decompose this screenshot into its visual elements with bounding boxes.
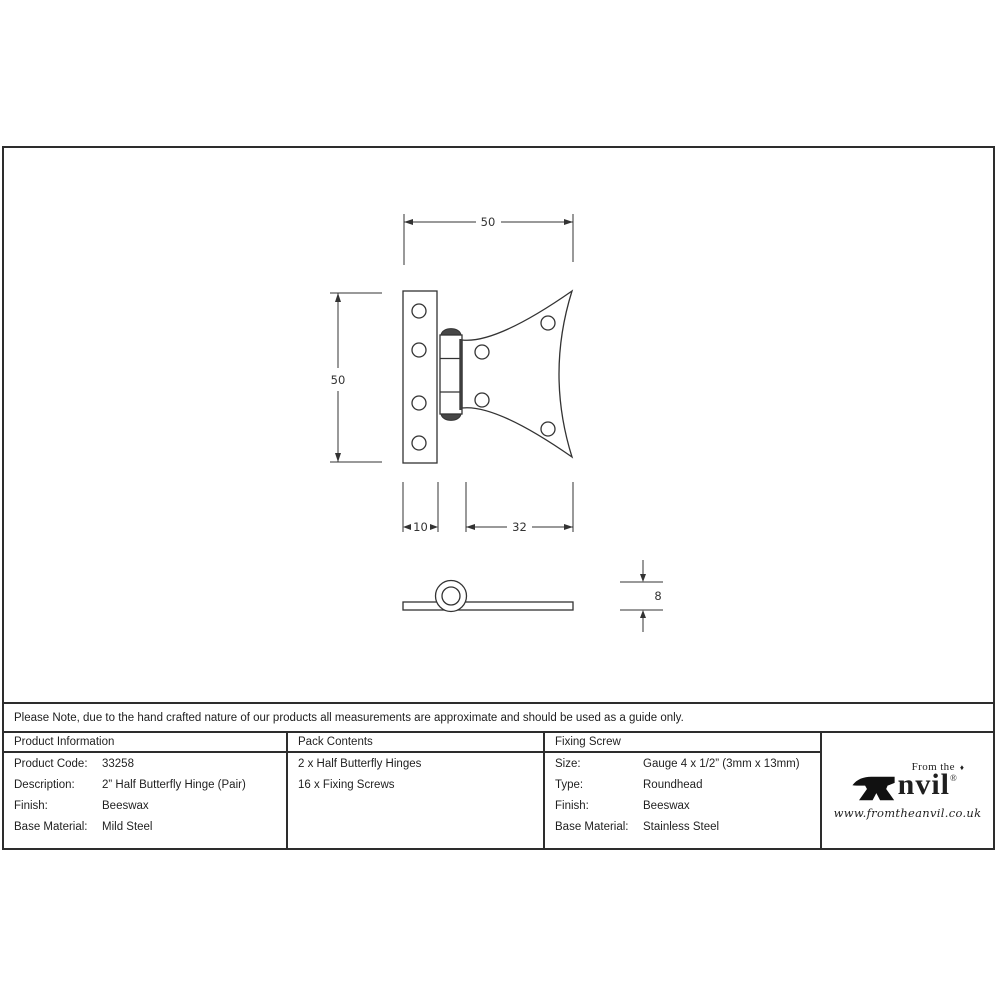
product-code-row: Product Code: 33258: [14, 754, 286, 775]
side-view-plate: [403, 602, 573, 610]
field-value: Beeswax: [643, 796, 820, 817]
dim-label-left-height: 50: [331, 373, 346, 387]
note-text: Please Note, due to the hand crafted nat…: [14, 712, 684, 724]
field-label: Type:: [555, 775, 643, 796]
logo-wordmark: nvil: [898, 768, 950, 801]
knuckle-top-cap: [441, 329, 461, 335]
pack-line: 2 x Half Butterfly Hinges: [298, 754, 543, 775]
screw-hole: [412, 343, 426, 357]
field-label: Base Material:: [555, 817, 643, 838]
field-value: Beeswax: [102, 796, 286, 817]
knuckle-barrel: [440, 335, 462, 414]
screw-hole: [412, 436, 426, 450]
pack-contents-header: Pack Contents: [288, 733, 543, 753]
field-value: Stainless Steel: [643, 817, 820, 838]
field-value: 2” Half Butterfly Hinge (Pair): [102, 775, 286, 796]
dimension-bottom: [403, 482, 573, 532]
spec-sheet-page: 50 50: [0, 0, 1000, 1000]
screw-hole: [475, 393, 489, 407]
field-value: Gauge 4 x 1/2” (3mm x 13mm): [643, 754, 820, 775]
field-value: 33258: [102, 754, 286, 775]
screw-hole: [541, 316, 555, 330]
field-label: Finish:: [14, 796, 102, 817]
hinge-drawing-svg: 50 50: [4, 148, 993, 700]
anvil-icon: [851, 773, 897, 803]
butterfly-wing: [462, 291, 572, 457]
dim-label-top-width: 50: [481, 215, 496, 229]
product-information-header: Product Information: [4, 733, 286, 753]
diamond-icon: ♦: [960, 763, 964, 772]
field-label: Product Code:: [14, 754, 102, 775]
screw-hole: [541, 422, 555, 436]
type-row: Type: Roundhead: [555, 775, 820, 796]
base-material-row: Base Material: Mild Steel: [14, 817, 286, 838]
knuckle-bottom-cap: [441, 414, 461, 420]
field-label: Size:: [555, 754, 643, 775]
field-value: Roundhead: [643, 775, 820, 796]
registered-mark: ®: [950, 773, 957, 783]
technical-drawing: 50 50: [4, 148, 993, 702]
brand-logo-cell: From the ♦ nvil® www.fromtheanvil.co.uk: [820, 733, 993, 848]
dim-label-wing-width: 32: [512, 520, 527, 534]
field-label: Finish:: [555, 796, 643, 817]
pack-contents-column: Pack Contents 2 x Half Butterfly Hinges …: [286, 733, 543, 848]
note-box: Please Note, due to the hand crafted nat…: [4, 702, 993, 733]
info-table: Product Information Product Code: 33258 …: [4, 733, 993, 848]
field-value: Mild Steel: [102, 817, 286, 838]
base-material-row: Base Material: Stainless Steel: [555, 817, 820, 838]
dim-label-thickness: 8: [654, 589, 661, 603]
drawing-frame: 50 50: [2, 146, 995, 850]
screw-hole: [475, 345, 489, 359]
field-label: Description:: [14, 775, 102, 796]
dim-label-leaf-width: 10: [413, 520, 428, 534]
screw-hole: [412, 396, 426, 410]
side-view-knuckle-inner: [442, 587, 460, 605]
fixing-screw-column: Fixing Screw Size: Gauge 4 x 1/2” (3mm x…: [543, 733, 820, 848]
product-information-column: Product Information Product Code: 33258 …: [4, 733, 286, 848]
finish-row: Finish: Beeswax: [555, 796, 820, 817]
screw-hole: [412, 304, 426, 318]
size-row: Size: Gauge 4 x 1/2” (3mm x 13mm): [555, 754, 820, 775]
fixing-screw-header: Fixing Screw: [545, 733, 820, 753]
description-row: Description: 2” Half Butterfly Hinge (Pa…: [14, 775, 286, 796]
brand-logo: From the ♦ nvil® www.fromtheanvil.co.uk: [834, 761, 982, 820]
logo-url: www.fromtheanvil.co.uk: [834, 806, 982, 820]
finish-row: Finish: Beeswax: [14, 796, 286, 817]
field-label: Base Material:: [14, 817, 102, 838]
pack-line: 16 x Fixing Screws: [298, 775, 543, 796]
